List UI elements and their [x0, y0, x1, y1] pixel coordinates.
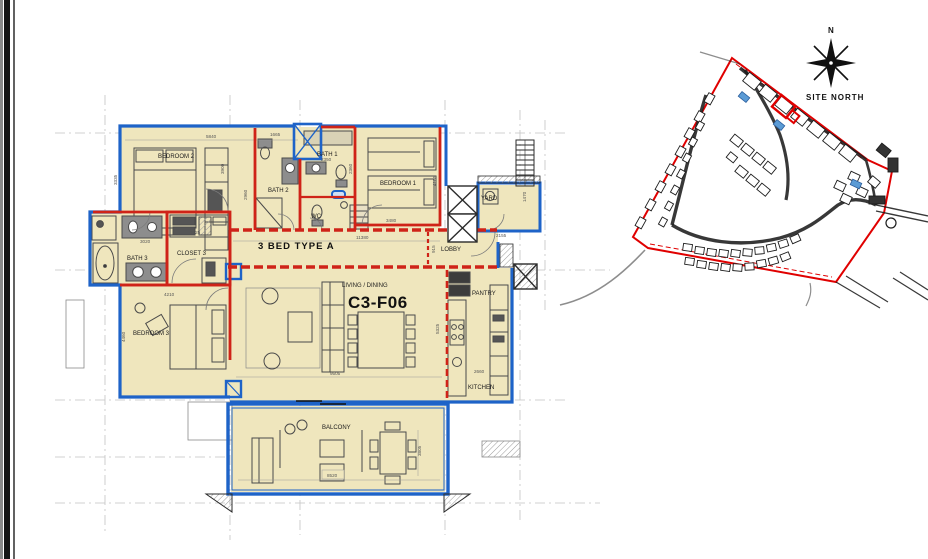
plan-title: 3 BED TYPE A: [258, 241, 335, 252]
dim-unit-width: 11380: [356, 235, 369, 240]
architectural-drawing: 5840 3335 3900 2960 1665 2350 2360 3480 …: [0, 0, 928, 559]
room-label-living-dining: LIVING / DINING: [342, 283, 388, 289]
dim-closet3-width: 2125: [190, 230, 201, 235]
dim-balcony-width: 8520: [327, 473, 338, 478]
dim-bedroom2-depth: 3335: [113, 174, 118, 185]
sheet-border: [0, 0, 14, 559]
dim-balcony-depth: 3805: [417, 445, 422, 456]
room-label-bath2: BATH 2: [268, 188, 289, 194]
north-letter: N: [828, 26, 834, 35]
north-compass: N SITE NORTH: [806, 26, 864, 102]
dim-bedroom3-width: 4210: [164, 292, 175, 297]
room-label-bedroom2: BEDROOM 2: [158, 154, 195, 160]
floor-plan: 5840 3335 3900 2960 1665 2350 2360 3480 …: [66, 124, 540, 512]
compass-rose-icon: [806, 38, 856, 88]
dim-bedroom3-depth: 4460: [121, 331, 126, 342]
site-north-label: SITE NORTH: [806, 93, 864, 102]
dim-bath3-width: 3020: [140, 239, 151, 244]
dim-wardrobe-wall: 3900: [220, 163, 225, 174]
dim-kitchen-depth: 5325: [435, 323, 440, 334]
dim-living-width: 9505: [330, 371, 341, 376]
site-plan: N SITE NORTH: [560, 26, 928, 308]
room-label-kitchen: KITCHEN: [468, 385, 494, 391]
dim-yard-depth: 1470: [522, 191, 527, 202]
dim-kitchen-width: 2660: [474, 369, 485, 374]
unit-code: C3-F06: [348, 293, 408, 312]
room-label-bath1: BATH 1: [317, 152, 338, 158]
room-label-balcony: BALCONY: [322, 425, 351, 431]
room-label-closet3: CLOSET 3: [177, 251, 207, 257]
dim-hall-depth: 2960: [243, 189, 248, 200]
room-label-lobby: LOBBY: [441, 247, 461, 253]
drawing-sheet: 5840 3335 3900 2960 1665 2350 2360 3480 …: [0, 0, 928, 559]
site-pools: [738, 92, 862, 189]
room-label-wc: WC: [311, 214, 322, 220]
room-label-yard: YARD: [481, 196, 498, 202]
room-label-bath3: BATH 3: [127, 256, 148, 262]
dim-bath2-width: 1665: [270, 132, 281, 137]
dim-bath1-depth: 2360: [348, 163, 353, 174]
room-label-pantry: PANTRY: [472, 291, 496, 297]
room-label-bedroom3: BEDROOM 3: [133, 331, 170, 337]
room-label-bedroom1: BEDROOM 1: [380, 181, 417, 187]
room-fills: [90, 127, 540, 492]
dim-bedroom1-width: 3480: [386, 218, 397, 223]
dim-bedroom1-depth: 4185: [432, 175, 437, 186]
dim-lobby-depth: 915: [431, 245, 436, 253]
dim-bedroom2-width: 5840: [206, 134, 217, 139]
dim-yard-width: 2155: [496, 233, 507, 238]
